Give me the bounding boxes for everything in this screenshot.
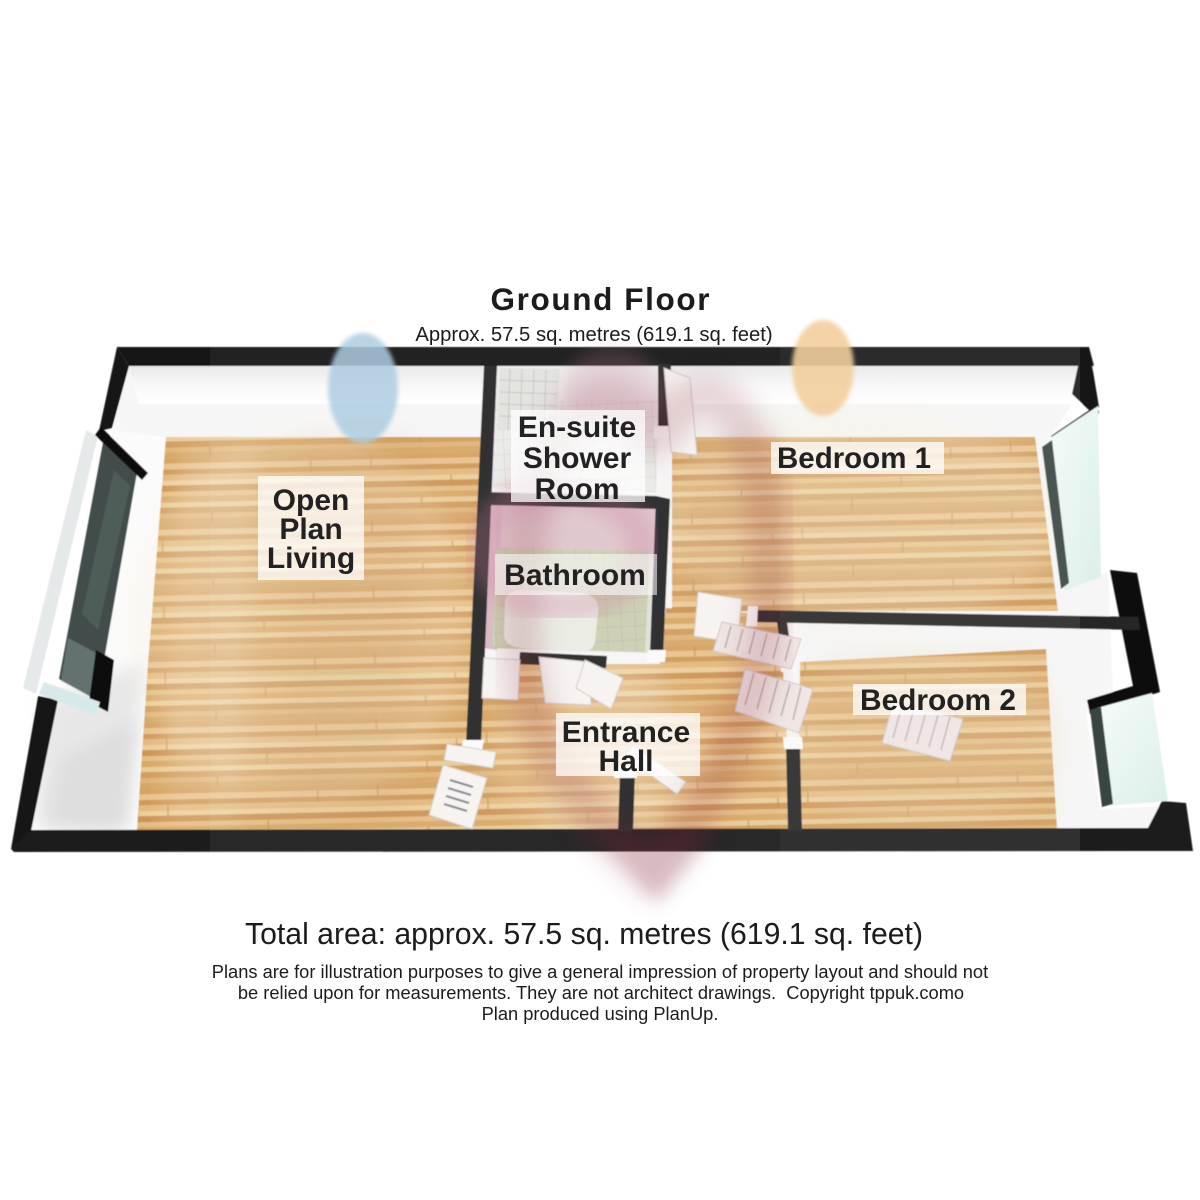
svg-text:Bathroom: Bathroom	[504, 559, 646, 592]
svg-text:Plans are for illustration pur: Plans are for illustration purposes to g…	[212, 961, 988, 982]
svg-text:be relied upon for measurement: be relied upon for measurements. They ar…	[238, 982, 964, 1003]
svg-text:Plan produced using PlanUp.: Plan produced using PlanUp.	[482, 1003, 719, 1024]
svg-text:Hall: Hall	[598, 745, 653, 778]
svg-text:Room: Room	[535, 473, 620, 506]
svg-text:Living: Living	[267, 542, 355, 575]
svg-text:Ground Floor: Ground Floor	[491, 281, 710, 317]
svg-text:Shower: Shower	[523, 442, 632, 475]
svg-text:Total area: approx. 57.5 sq. m: Total area: approx. 57.5 sq. metres (619…	[245, 916, 923, 951]
svg-text:Bedroom 2: Bedroom 2	[860, 684, 1016, 717]
svg-text:En-suite: En-suite	[518, 411, 636, 444]
svg-text:Approx. 57.5 sq. metres (619.1: Approx. 57.5 sq. metres (619.1 sq. feet)	[415, 324, 772, 346]
svg-text:Bedroom 1: Bedroom 1	[777, 442, 931, 475]
